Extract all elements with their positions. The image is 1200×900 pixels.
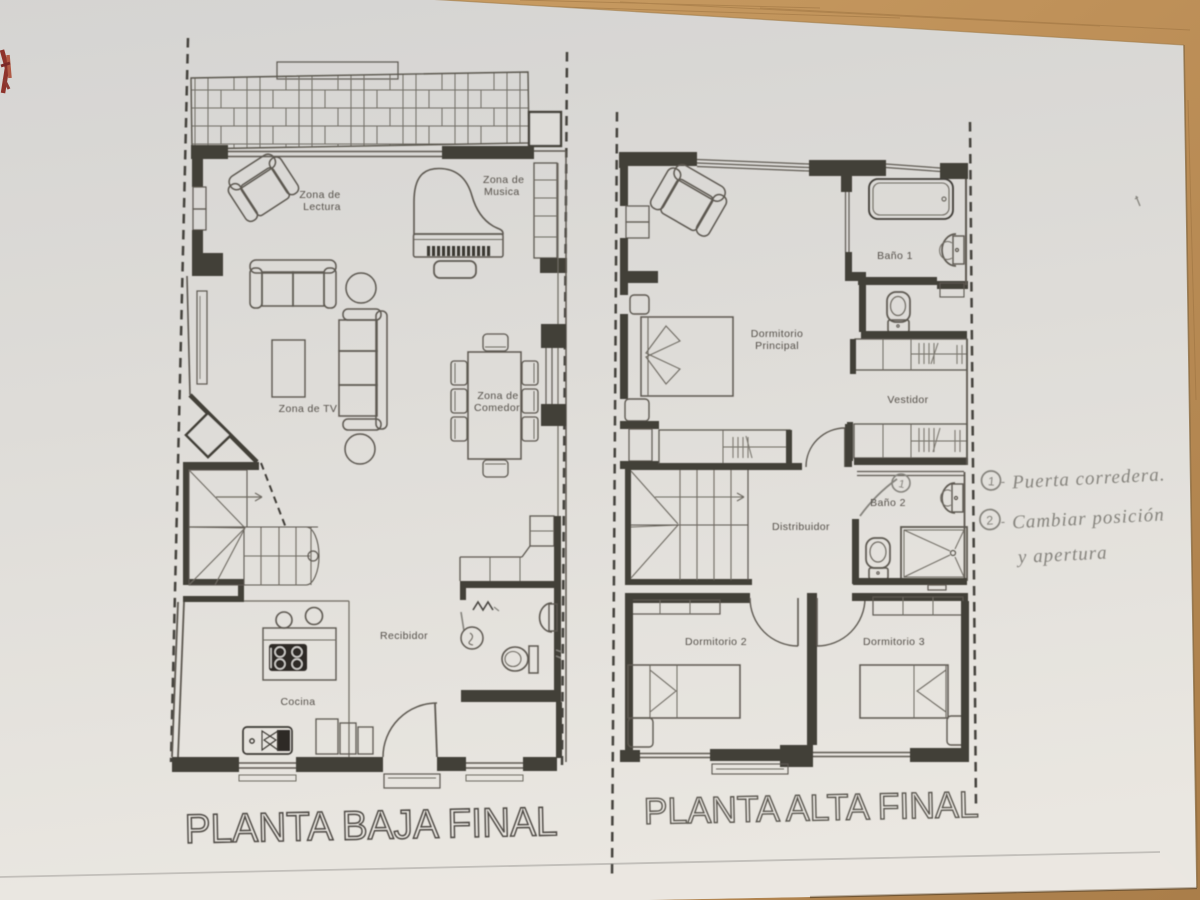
svg-text:Zona de: Zona de: [299, 189, 340, 201]
svg-text:Cocina: Cocina: [280, 696, 315, 708]
svg-text:Vestidor: Vestidor: [887, 394, 928, 406]
svg-text:Baño 1: Baño 1: [877, 250, 913, 262]
svg-text:1: 1: [987, 474, 995, 489]
svg-text:Zona de: Zona de: [483, 174, 524, 186]
svg-text:Comedor: Comedor: [474, 402, 520, 414]
svg-text:Recibidor: Recibidor: [380, 630, 428, 642]
svg-text:Lectura: Lectura: [303, 201, 341, 213]
svg-text:Distribuidor: Distribuidor: [772, 521, 830, 533]
svg-text:-: -: [1000, 474, 1006, 489]
svg-text:2: 2: [986, 513, 994, 527]
svg-text:Principal: Principal: [755, 340, 799, 352]
svg-text:Dormitorio 3: Dormitorio 3: [863, 636, 925, 648]
svg-text:-: -: [1000, 514, 1006, 529]
svg-text:Zona de: Zona de: [477, 390, 518, 402]
svg-text:Dormitorio: Dormitorio: [751, 328, 803, 340]
svg-text:Zona de TV: Zona de TV: [279, 403, 338, 415]
svg-text:Dormitorio 2: Dormitorio 2: [685, 636, 747, 648]
svg-text:Baño 2: Baño 2: [870, 497, 906, 509]
svg-text:PLANTA ALTA FINAL: PLANTA ALTA FINAL: [643, 784, 979, 832]
svg-text:Musica: Musica: [484, 186, 520, 198]
svg-text:PLANTA BAJA FINAL: PLANTA BAJA FINAL: [184, 798, 558, 852]
